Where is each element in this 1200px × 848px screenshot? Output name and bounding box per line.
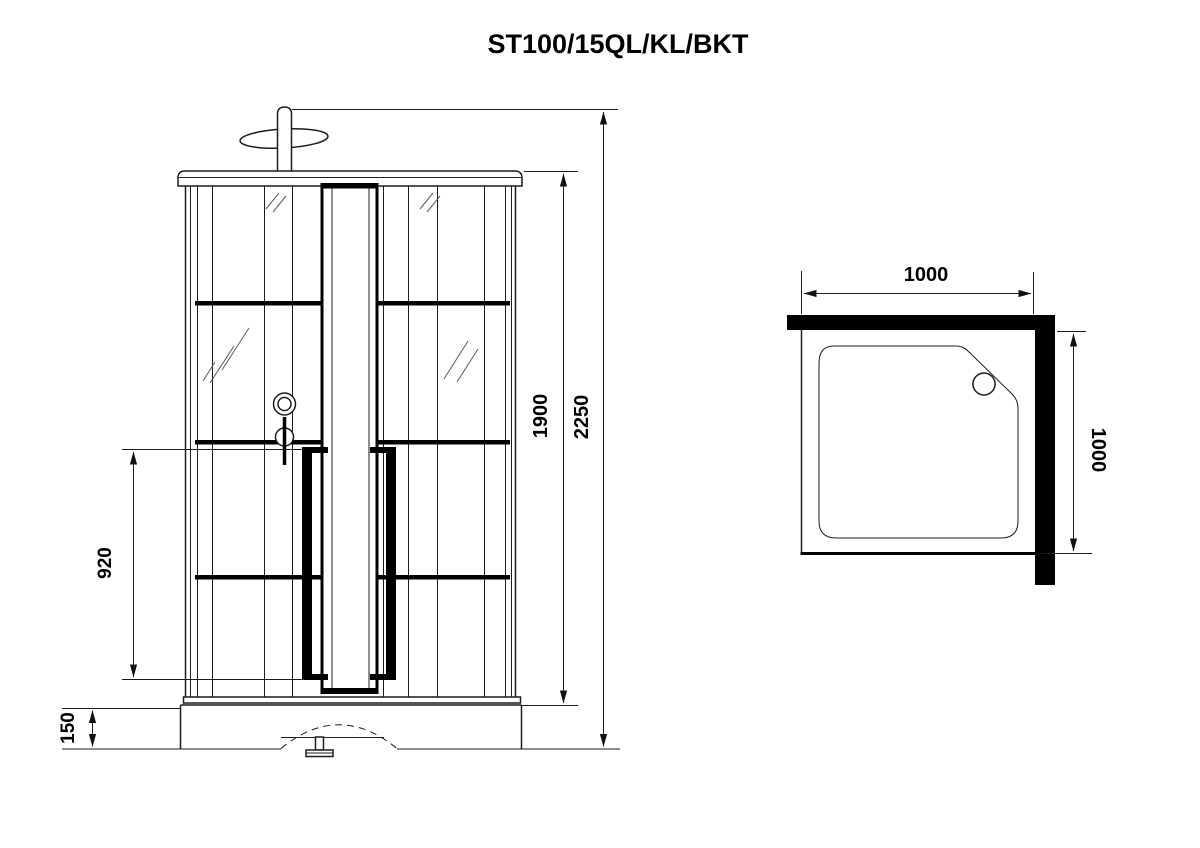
- door-bottom-cap: [321, 688, 379, 694]
- dimension-plan-width: 1000: [802, 264, 1034, 314]
- cabin-body: [186, 186, 516, 697]
- shower-tray: [181, 697, 522, 757]
- shower-knob-inner: [278, 398, 291, 411]
- dim-label-1000-depth: 1000: [1087, 428, 1109, 473]
- dimension-tray-height: 150: [58, 709, 180, 747]
- sliding-door-column: [321, 183, 379, 694]
- door-handles: [302, 447, 396, 680]
- side-wall-bar: [1035, 315, 1055, 585]
- dim-label-920: 920: [95, 547, 116, 579]
- drain-hole: [973, 373, 995, 395]
- top-view: 1000 1000: [787, 264, 1109, 585]
- drawing-svg: ST100/15QL/KL/BKT: [0, 0, 1200, 848]
- shower-head: [240, 107, 329, 171]
- door-top-cap: [321, 183, 379, 189]
- dim-label-150: 150: [58, 712, 79, 744]
- door-handle-left: [302, 447, 328, 680]
- shower-head-pipe: [278, 107, 292, 171]
- dimension-total-height: 2250: [292, 110, 618, 747]
- bottom-rail: [184, 697, 521, 703]
- glass-bars: [195, 301, 510, 580]
- glass-shine-marks: [203, 193, 478, 383]
- dim-label-1000-width: 1000: [904, 264, 949, 286]
- dim-label-2250: 2250: [571, 395, 593, 440]
- back-wall-bar: [787, 315, 1055, 330]
- dimension-cabin-height: 1900: [522, 172, 578, 706]
- technical-drawing-page: ST100/15QL/KL/BKT: [0, 0, 1200, 848]
- front-view: 150 920 1900 2250: [58, 107, 620, 757]
- adjustable-foot: [306, 737, 333, 757]
- drawing-title: ST100/15QL/KL/BKT: [487, 29, 749, 59]
- tray-apron-arc: [281, 725, 397, 749]
- dimension-handle-length: 920: [95, 450, 305, 680]
- dim-label-1900: 1900: [530, 394, 552, 439]
